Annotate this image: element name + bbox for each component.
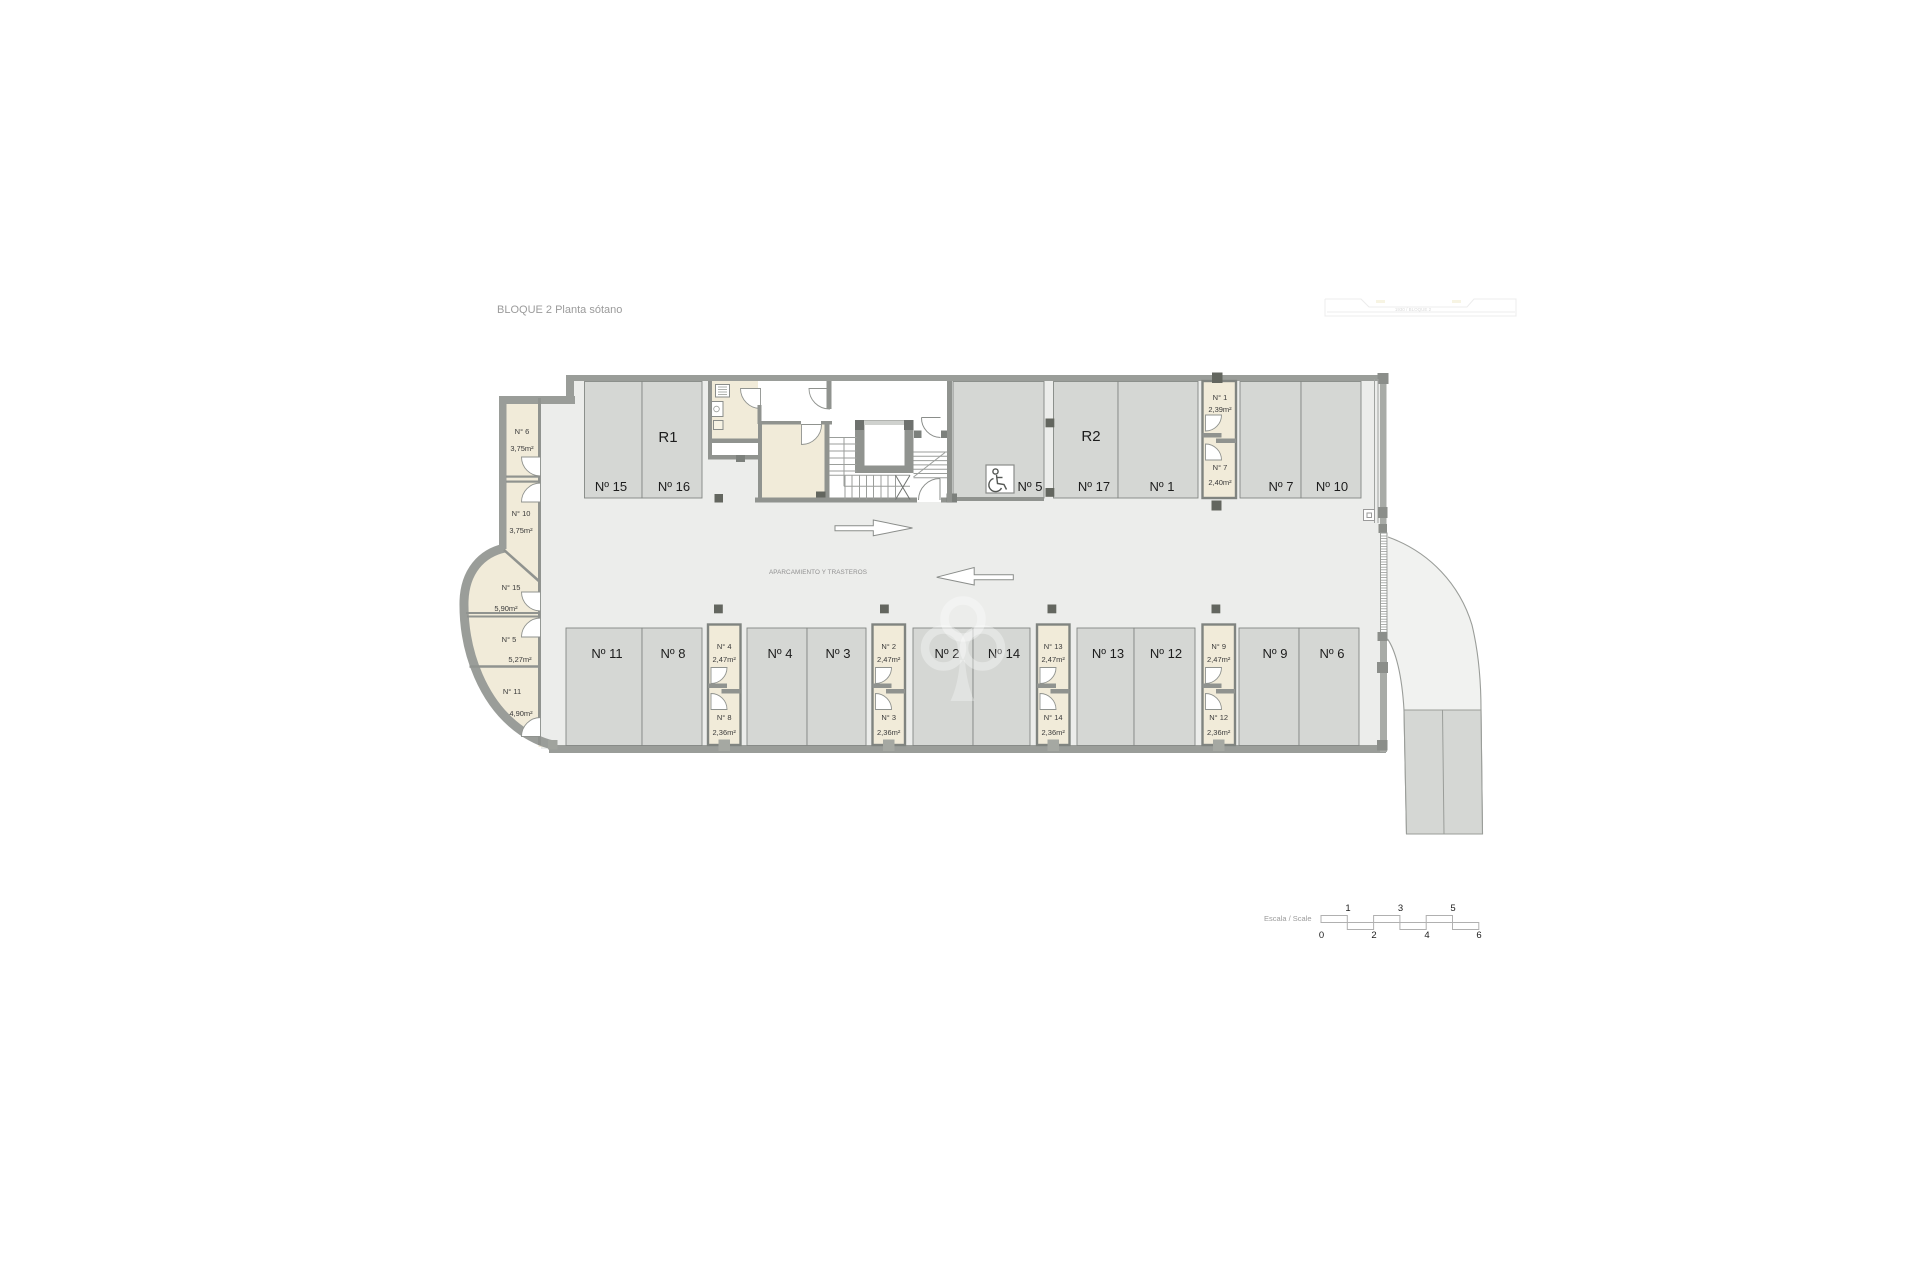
- svg-text:6: 6: [1476, 930, 1481, 941]
- svg-text:N° 8: N° 8: [717, 713, 732, 722]
- svg-text:Nº 16: Nº 16: [658, 479, 690, 494]
- svg-text:Nº 6: Nº 6: [1320, 646, 1345, 661]
- svg-text:2,47m²: 2,47m²: [713, 655, 737, 664]
- svg-text:2,47m²: 2,47m²: [1207, 655, 1231, 664]
- svg-text:Nº 12: Nº 12: [1150, 646, 1182, 661]
- svg-text:Nº 3: Nº 3: [826, 646, 851, 661]
- svg-text:Nº 8: Nº 8: [661, 646, 686, 661]
- svg-text:5: 5: [1450, 903, 1455, 914]
- svg-text:0: 0: [1319, 930, 1324, 941]
- svg-text:2,40m²: 2,40m²: [1208, 478, 1232, 487]
- svg-text:Nº 7: Nº 7: [1269, 479, 1294, 494]
- svg-text:4: 4: [1424, 930, 1429, 941]
- svg-text:Nº 10: Nº 10: [1316, 479, 1348, 494]
- svg-text:Nº 17: Nº 17: [1078, 479, 1110, 494]
- svg-text:Nº 11: Nº 11: [591, 646, 622, 661]
- svg-text:Nº 5: Nº 5: [1018, 479, 1043, 494]
- svg-text:N° 15: N° 15: [502, 583, 521, 592]
- svg-text:2,36m²: 2,36m²: [1042, 728, 1066, 737]
- svg-text:Nº 13: Nº 13: [1092, 646, 1124, 661]
- svg-text:N° 10: N° 10: [512, 509, 531, 518]
- svg-text:N° 3: N° 3: [881, 713, 896, 722]
- svg-text:APARCAMIENTO Y TRASTEROS: APARCAMIENTO Y TRASTEROS: [769, 569, 867, 576]
- svg-text:BLOQUE 2 Planta sótano: BLOQUE 2 Planta sótano: [497, 304, 622, 316]
- svg-text:2,36m²: 2,36m²: [713, 728, 737, 737]
- svg-text:R2: R2: [1081, 428, 1100, 445]
- svg-text:N° 5: N° 5: [502, 635, 517, 644]
- svg-text:2,47m²: 2,47m²: [1042, 655, 1066, 664]
- svg-text:Nº 15: Nº 15: [595, 479, 627, 494]
- svg-text:N° 7: N° 7: [1213, 463, 1228, 472]
- svg-text:Escala / Scale: Escala / Scale: [1264, 914, 1312, 923]
- svg-text:N° 9: N° 9: [1211, 642, 1226, 651]
- svg-text:2,39m²: 2,39m²: [1208, 405, 1232, 414]
- svg-text:1: 1: [1345, 903, 1350, 914]
- svg-text:5,27m²: 5,27m²: [508, 655, 532, 664]
- svg-text:N° 14: N° 14: [1044, 713, 1063, 722]
- svg-text:4,90m²: 4,90m²: [509, 709, 533, 718]
- svg-text:Nº 4: Nº 4: [768, 646, 793, 661]
- svg-text:2,47m²: 2,47m²: [877, 655, 901, 664]
- svg-text:3,75m²: 3,75m²: [510, 444, 534, 453]
- svg-text:2,36m²: 2,36m²: [1207, 728, 1231, 737]
- svg-text:3: 3: [1398, 903, 1403, 914]
- svg-text:N° 11: N° 11: [503, 687, 521, 696]
- svg-text:1930 / BLOQUE 2: 1930 / BLOQUE 2: [1395, 307, 1432, 312]
- svg-text:R1: R1: [658, 429, 677, 446]
- svg-text:3,75m²: 3,75m²: [509, 526, 533, 535]
- svg-text:2: 2: [1371, 930, 1376, 941]
- svg-text:N° 6: N° 6: [515, 427, 530, 436]
- svg-text:Nº 1: Nº 1: [1150, 479, 1175, 494]
- svg-text:N° 1: N° 1: [1213, 393, 1228, 402]
- svg-text:N° 4: N° 4: [717, 642, 732, 651]
- svg-text:N° 2: N° 2: [881, 642, 896, 651]
- svg-text:5,90m²: 5,90m²: [494, 604, 518, 613]
- svg-text:N° 13: N° 13: [1044, 642, 1063, 651]
- svg-text:Nº 9: Nº 9: [1263, 646, 1288, 661]
- svg-text:2,36m²: 2,36m²: [877, 728, 901, 737]
- svg-text:N° 12: N° 12: [1209, 713, 1228, 722]
